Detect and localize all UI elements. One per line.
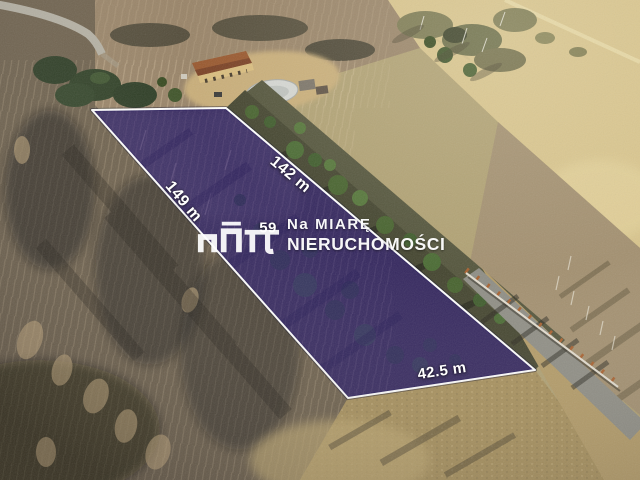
aerial-photo: 142 m 149 m 42.5 m 59 Na MIARĘ NIERUCHOM… xyxy=(0,0,640,480)
watermark-line2: NIERUCHOMOŚCI xyxy=(287,234,446,254)
brand-watermark: Na MIARĘ NIERUCHOMOŚCI xyxy=(196,216,446,254)
watermark-line1: Na MIARĘ xyxy=(287,216,446,234)
na-miare-monogram-icon xyxy=(196,220,280,254)
